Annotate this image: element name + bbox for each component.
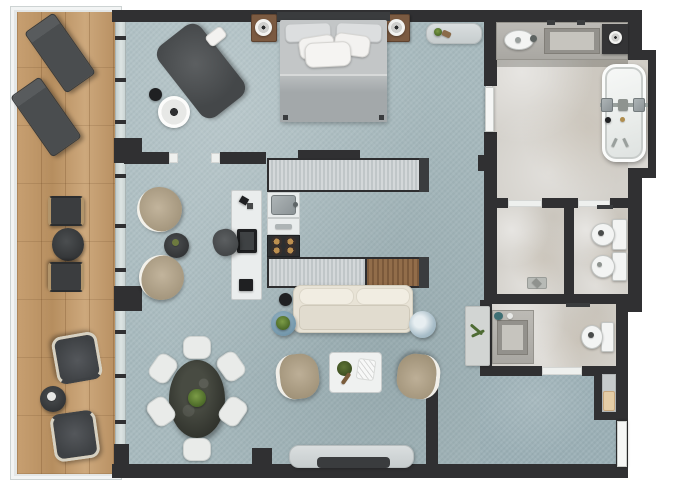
bed-foot-right: [379, 115, 384, 120]
window-bench-cushion: [317, 457, 390, 468]
kitchen-counter-front-wood: [365, 257, 421, 288]
bed-duvet: [280, 74, 387, 122]
vanity-appliance-knob: [609, 31, 622, 44]
bathtub-gold-dot: [620, 117, 625, 122]
threshold-bathroom2-door: [542, 367, 582, 375]
bathtub: [602, 64, 646, 162]
wall-faucet-1: [547, 20, 555, 25]
mullion-tick-6: [115, 268, 126, 272]
kitchen-counter-back: [267, 158, 423, 192]
side-table-plant: [276, 316, 290, 330]
bathtub-drain: [605, 117, 611, 123]
floor-plan-image: [0, 0, 680, 486]
dining-chair-north: [183, 336, 211, 359]
balcony-glass-wall: [115, 20, 126, 466]
mullion-tick-1: [115, 36, 126, 40]
kitchen-counter-front: [267, 257, 367, 288]
wall-bottom-step-pier: [252, 448, 272, 465]
console-table: [465, 306, 490, 366]
patio-lounge-chair-2: [49, 409, 101, 463]
wall-right-mid: [628, 168, 642, 312]
mullion-tick-3: [115, 120, 126, 124]
patio-table-2-cup: [47, 392, 56, 401]
wall-closet-top: [594, 366, 620, 374]
kitchen-faucet: [293, 202, 298, 207]
wall-bath-south-a: [492, 198, 508, 208]
patio-chair-1: [48, 196, 84, 226]
partition-jamb-right: [211, 153, 220, 163]
sofa-back-cushion-left: [299, 288, 354, 305]
vanity-faucet: [530, 35, 537, 42]
wall-glass-pier-3: [114, 444, 129, 466]
mullion-tick-7: [115, 330, 126, 334]
mullion-tick-5: [115, 224, 126, 228]
kitchen-drawer-handle: [275, 224, 292, 229]
desk-decor-2: [247, 203, 253, 209]
wall-bath-south-c: [610, 198, 634, 208]
entry-closet-item: [603, 391, 615, 411]
wall-glass-pier-1: [114, 138, 142, 163]
wall-shower-wc-divider: [564, 202, 574, 302]
round-side-table: [158, 96, 190, 128]
wall-bath-door-bump: [478, 155, 486, 171]
mullion-tick-9: [115, 420, 126, 424]
mullion-tick-4: [115, 174, 126, 178]
mullion-tick-8: [115, 374, 126, 378]
kitchen-counter-back-cap: [419, 158, 429, 192]
wall-bathroom2-north: [484, 294, 632, 304]
bathroom-door-leaf: [485, 87, 494, 132]
sofa-side-cup: [279, 293, 292, 306]
coffee-table-papers: [356, 358, 377, 381]
sofa-back-cushion-right: [356, 288, 410, 305]
mullion-tick-2: [115, 78, 126, 82]
lamp-right: [388, 19, 405, 36]
wall-closet-bottom: [594, 412, 620, 420]
bathroom2-sink-inner: [502, 325, 523, 350]
bathroom2-towel-bar: [566, 303, 590, 307]
wall-bathroom2-south-a: [480, 366, 542, 376]
patio-chair-2: [48, 262, 84, 292]
threshold-shower-door: [508, 200, 542, 207]
desk-laptop-screen: [240, 232, 254, 250]
bathtub-spout: [618, 99, 628, 111]
sofa-seat-cushion: [299, 305, 410, 330]
patio-table-1: [52, 228, 84, 261]
bathtub-knob-right: [633, 98, 645, 112]
bed-pillow-white-center: [304, 41, 351, 68]
floor-plan: [0, 0, 680, 486]
wall-niche-right: [648, 50, 656, 178]
partition-jamb-left: [169, 153, 178, 163]
kitchen-cooktop: [267, 235, 300, 257]
wc-wall-mark: [597, 205, 613, 209]
side-table-marble: [409, 311, 436, 338]
bathroom2-soap: [494, 312, 503, 320]
wc-toilet-drain: [598, 230, 604, 236]
swivel-table-decor: [172, 239, 179, 246]
wc-bidet-tap: [597, 262, 602, 267]
wall-faucet-2: [577, 20, 585, 25]
bed-foot-left: [283, 115, 288, 120]
coffee-cup: [149, 88, 162, 101]
wall-glass-pier-2: [114, 286, 142, 311]
vanity-sink-drain: [515, 37, 521, 43]
wc-bidet-bowl: [591, 255, 615, 278]
wall-partition-b: [220, 152, 266, 164]
patio-lounge-chair-1: [50, 330, 104, 385]
bathroom2-toilet-drain: [588, 332, 594, 338]
dining-centerpiece-plant: [188, 389, 206, 407]
bathroom2-cup: [507, 313, 513, 319]
desk-tray: [239, 279, 253, 291]
bathtub-knob-left: [601, 98, 613, 112]
kitchen-counter-front-cap: [419, 257, 429, 288]
entry-door-leaf: [617, 421, 627, 467]
dining-chair-south: [183, 438, 211, 461]
lamp-left: [255, 19, 272, 36]
vanity-tray-inner: [550, 32, 594, 50]
